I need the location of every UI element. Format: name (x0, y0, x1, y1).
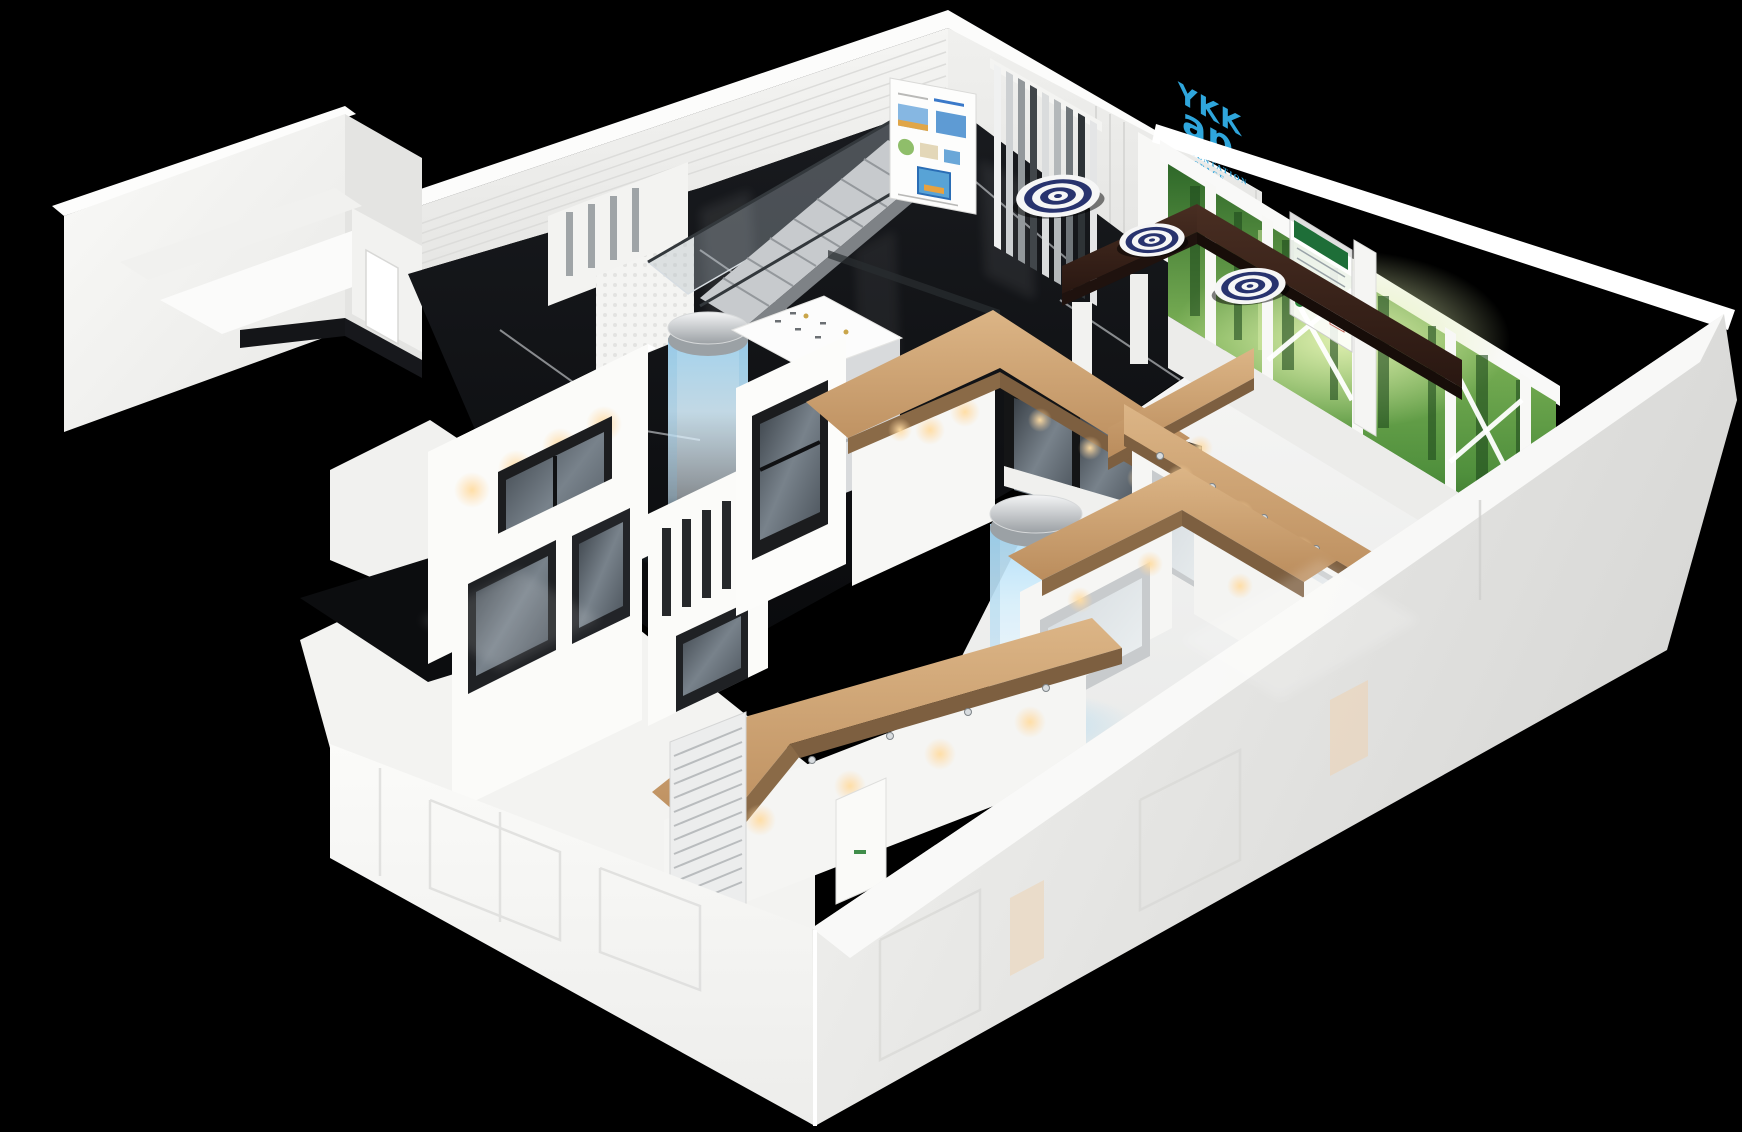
poster-photo (918, 167, 950, 199)
under-counter-light (1014, 706, 1046, 738)
louver-slat (1018, 78, 1025, 264)
louver-slat (994, 64, 1001, 250)
under-counter-light (744, 804, 776, 836)
info-poster-board (890, 78, 976, 214)
warm-spotlight (454, 472, 490, 508)
under-counter-light (1028, 408, 1052, 432)
counter-white-post (1130, 274, 1148, 364)
louver-slat (1030, 85, 1037, 271)
under-counter-light (924, 738, 956, 770)
under-counter-light (1078, 436, 1102, 460)
under-counter-light (1067, 587, 1093, 613)
cylinder-shade-left (668, 338, 677, 518)
showroom-render-stage: YKK ap ® PRESENTATION SPACE TAIPEI (0, 0, 1742, 1132)
isometric-showroom-scene: YKK ap ® PRESENTATION SPACE TAIPEI (0, 0, 1742, 1132)
louver-slat (1006, 71, 1013, 257)
under-counter-light (888, 418, 912, 442)
niche-green-item (854, 850, 866, 854)
under-counter-light (1137, 551, 1163, 577)
under-counter-light (1227, 573, 1253, 599)
